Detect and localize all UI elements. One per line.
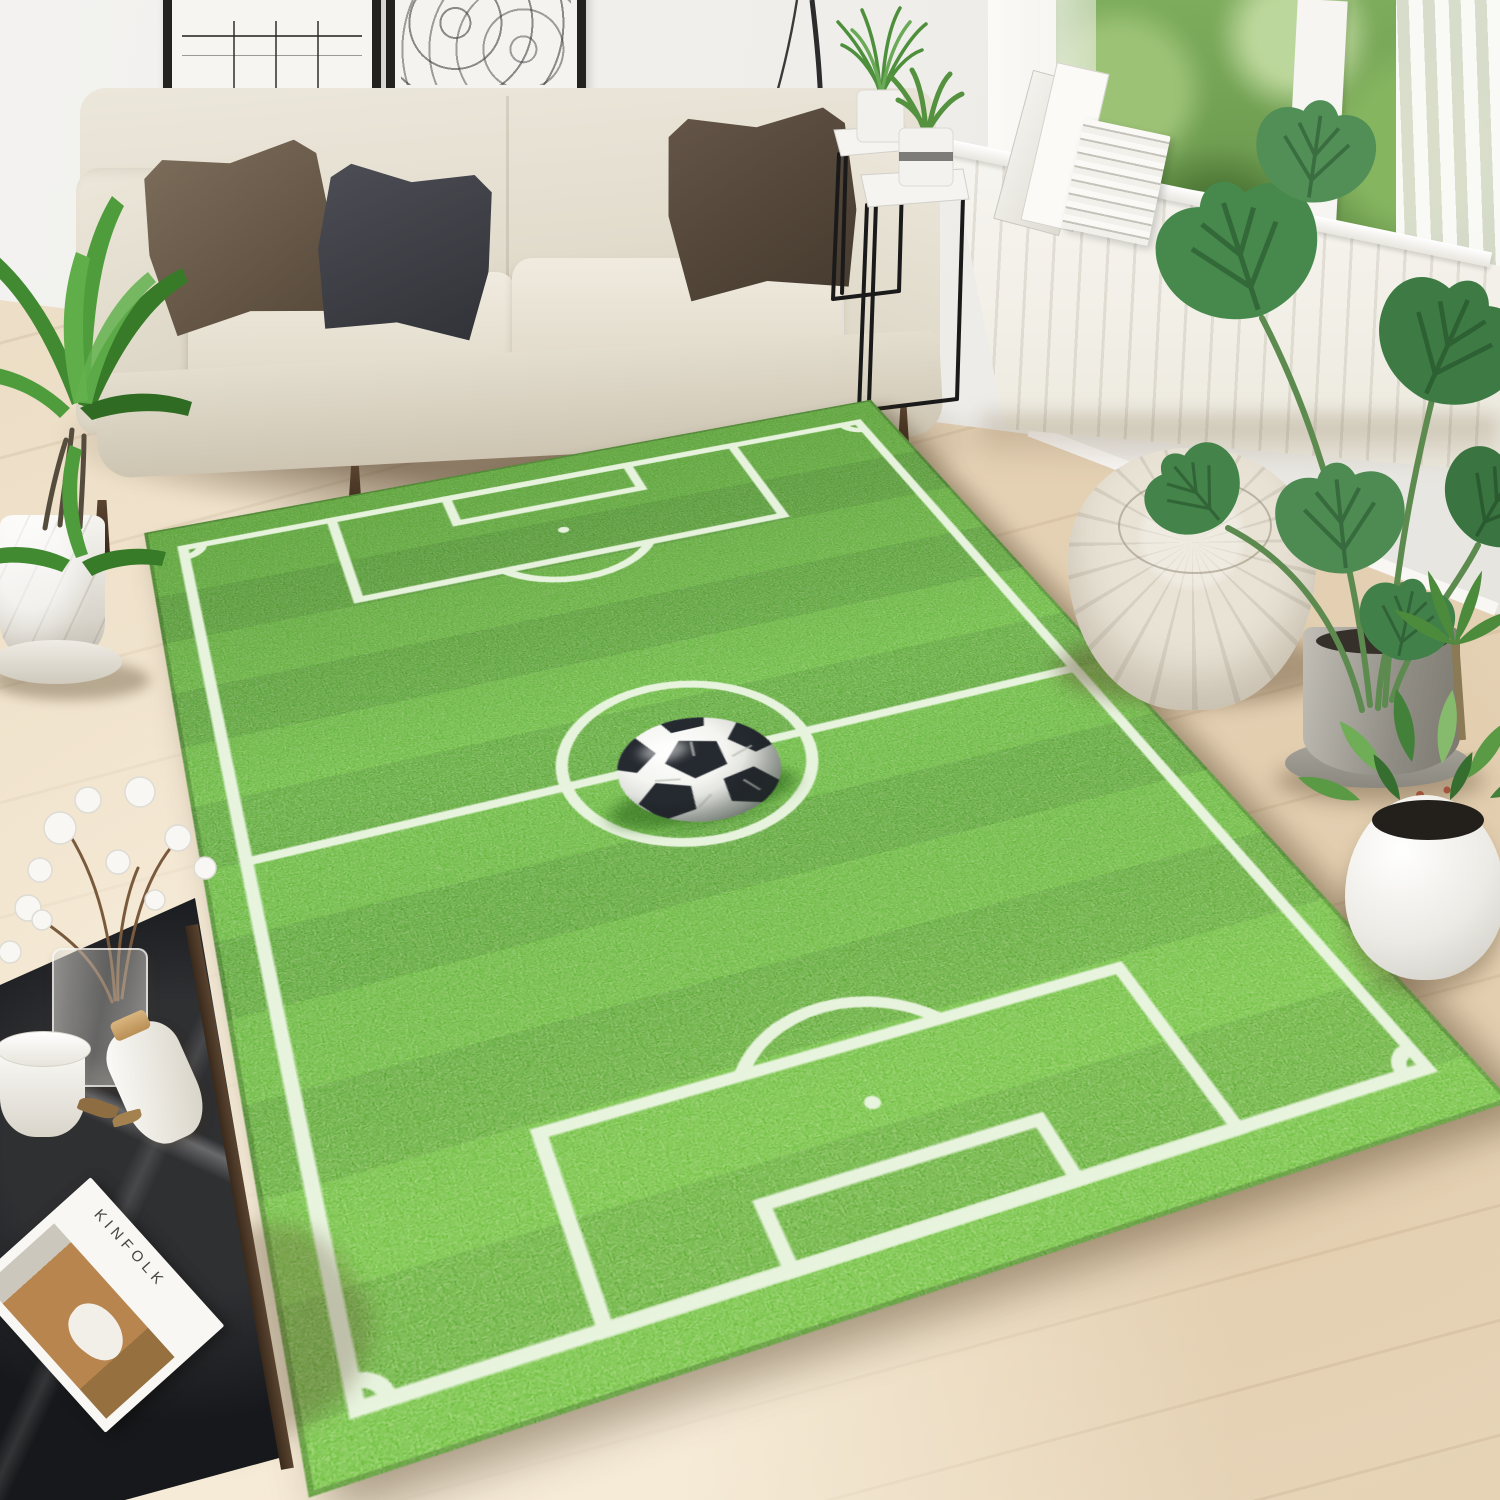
coffee-table: KINFOLK	[0, 860, 640, 1500]
shrub-soil	[1372, 800, 1484, 840]
living-room-scene: KINFOLK	[0, 0, 1500, 1500]
dracaena-crown	[1391, 569, 1500, 651]
jar-rim	[0, 1031, 91, 1067]
shrub-leaves	[1295, 687, 1500, 807]
white-jar	[0, 1045, 85, 1137]
cover-figure	[58, 1295, 135, 1369]
